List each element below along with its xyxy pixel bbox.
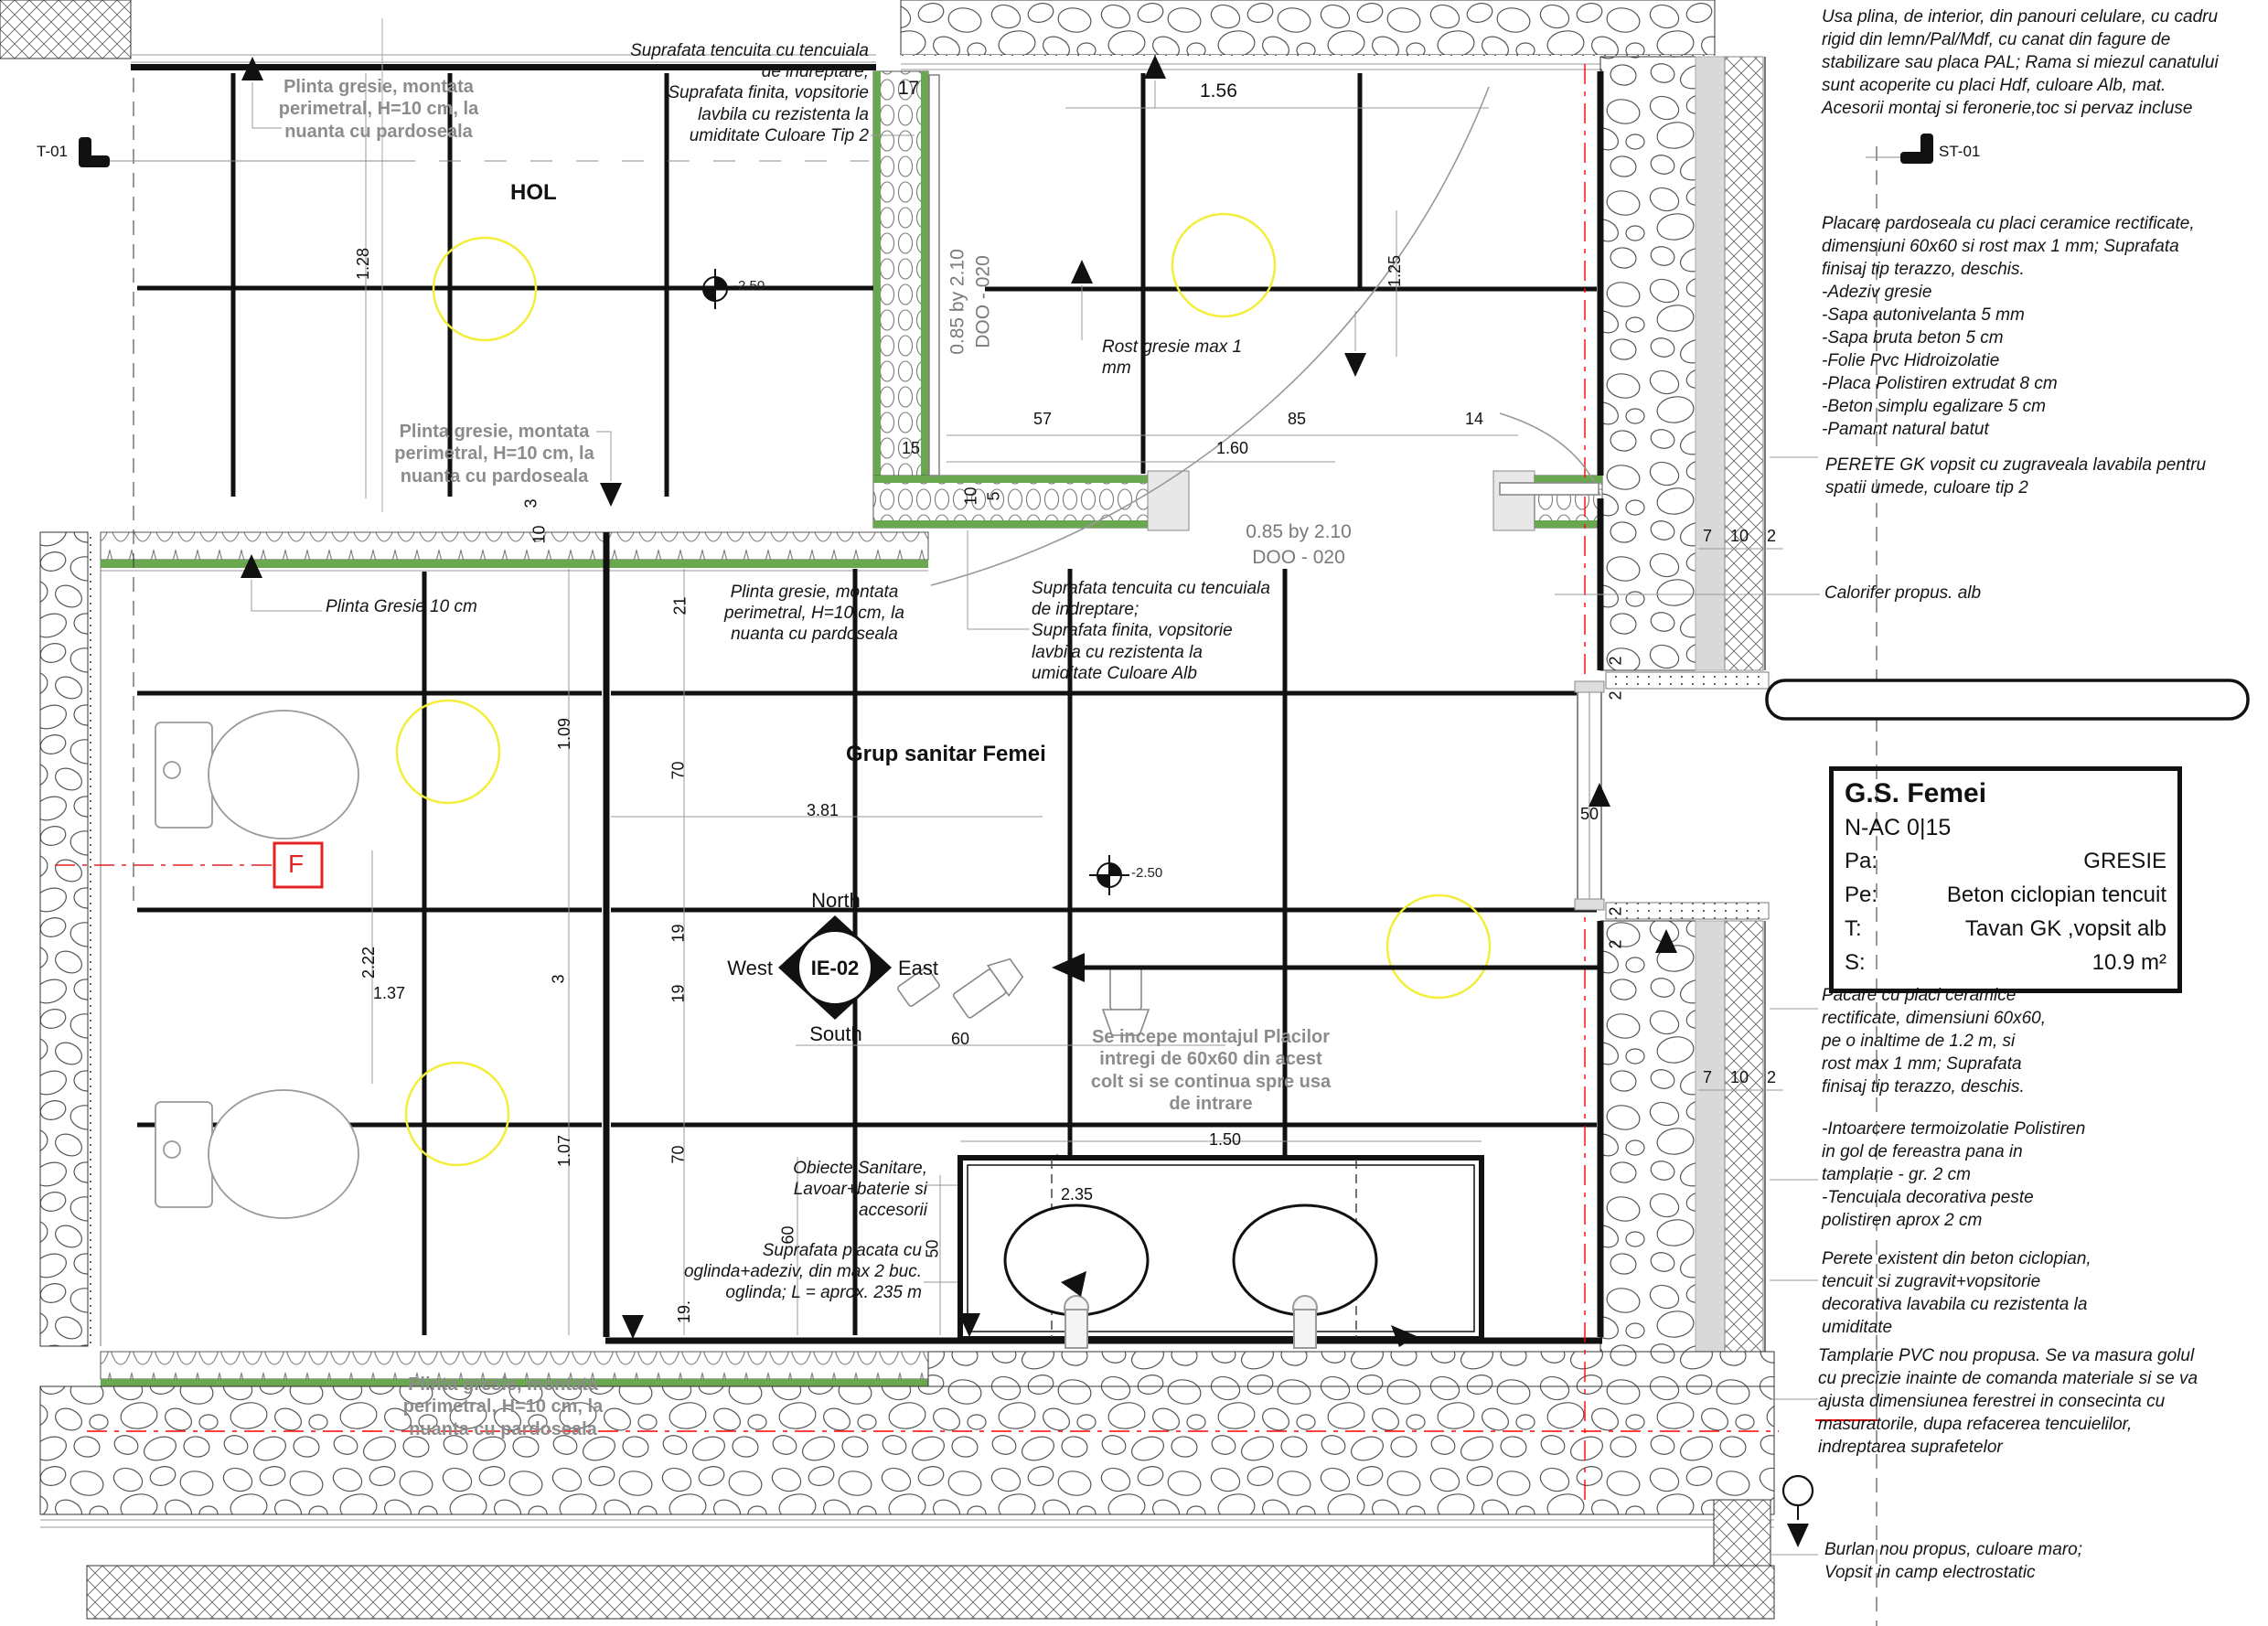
note-rost: Rost gresie max 1 mm	[1102, 337, 1358, 379]
dim-2-sill-a: 2	[1607, 656, 1626, 665]
room-label-hol: HOL	[510, 179, 557, 206]
dim-1-60: 1.60	[1216, 439, 1248, 458]
dim-3-81: 3.81	[807, 801, 839, 820]
dim-70-a: 70	[669, 761, 689, 779]
note-plinta-italic: Plinta gresie, montata perimetral, H=10 …	[702, 582, 926, 646]
info-row-pe: Pe: Beton ciclopian tencuit	[1845, 878, 2166, 912]
note-montaj: Se incepe montajul Placilor intregi de 6…	[1077, 1026, 1344, 1116]
dim-5-wall: 5	[985, 491, 1004, 500]
compass-id: IE-02	[800, 957, 870, 981]
dim-19-b: 19	[669, 984, 689, 1002]
info-box-title: G.S. Femei	[1845, 776, 2166, 811]
dim-3-b: 3	[550, 974, 569, 983]
info-row-s: S: 10.9 m²	[1845, 946, 2166, 979]
dim-60-b: 60	[779, 1225, 798, 1244]
note-pacare: Pacare cu placi ceramice rectificate, di…	[1822, 984, 2151, 1098]
door2-label: 0.85 by 2.10DOO - 020	[1216, 519, 1381, 572]
floor-plan-canvas: Plinta gresie, montata perimetral, H=10 …	[0, 0, 2268, 1626]
level-value-hol: -2.50	[733, 278, 765, 294]
dim-2-sill-b: 2	[1607, 690, 1626, 700]
dim-2-22: 2.22	[359, 947, 379, 979]
room-label-main: Grup sanitar Femei	[846, 741, 1046, 767]
info-box-code: N-AC 0|15	[1845, 811, 2166, 844]
dim-7-bottom: 7	[1703, 1068, 1712, 1087]
door1-label-wrap: 0.85 by 2.10DOO - 020	[946, 165, 998, 439]
compass-north: North	[796, 889, 876, 914]
st01-symbol	[1900, 134, 1933, 164]
note-burlan: Burlan nou propus, culoare maro; Vopsit …	[1824, 1538, 2268, 1584]
dim-1-56: 1.56	[1200, 80, 1237, 102]
toilet-1	[155, 711, 358, 839]
note-suprafata-alb: Suprafata tencuita cu tencuiala de indre…	[1032, 578, 1306, 684]
dim-85: 85	[1288, 410, 1306, 429]
dim-2-sill-d: 2	[1607, 939, 1626, 948]
dim-14: 14	[1465, 410, 1483, 429]
room-info-box: G.S. Femei N-AC 0|15 Pa: GRESIE Pe: Beto…	[1829, 766, 2182, 993]
section-marker-f-label: F	[288, 849, 304, 880]
door1-label: 0.85 by 2.10DOO - 020	[946, 165, 998, 439]
dim-21: 21	[671, 596, 690, 615]
dim-19-a: 19	[669, 924, 689, 942]
dim-1-50: 1.50	[1209, 1130, 1241, 1150]
dim-1-09: 1.09	[555, 718, 574, 750]
door2-code: DOO - 020	[1252, 547, 1345, 568]
dim-1-07: 1.07	[555, 1135, 574, 1167]
dim-50-window: 50	[1580, 805, 1599, 824]
dim-50-a: 50	[924, 1239, 943, 1257]
dim-10-wall-b: 10	[530, 525, 550, 543]
compass-east: East	[898, 957, 938, 981]
info-row-pa: Pa: GRESIE	[1845, 844, 2166, 878]
door1-size: 0.85 by 2.10	[947, 249, 968, 355]
toilet-2	[155, 1090, 358, 1218]
note-perete-gk: PERETE GK vopsit cu zugraveala lavabila …	[1825, 454, 2268, 499]
level-value-main: -2.50	[1131, 865, 1162, 881]
dim-15: 15	[902, 439, 920, 458]
dim-60-a: 60	[951, 1030, 969, 1049]
note-oglinda: Suprafata placata cu oglinda+adeziv, din…	[640, 1240, 922, 1304]
info-row-pa-key: Pa:	[1845, 844, 1892, 878]
compass-west: West	[709, 957, 773, 981]
door2-size: 0.85 by 2.10	[1246, 521, 1352, 542]
spotlight-track-icon	[897, 953, 1599, 1035]
info-row-t: T: Tavan GK ,vopsit alb	[1845, 912, 2166, 946]
dim-7-top: 7	[1703, 527, 1712, 546]
marker-t01: T-01	[37, 143, 68, 161]
door1-code: DOO - 020	[973, 255, 994, 348]
note-plinta-1: Plinta gresie, montata perimetral, H=10 …	[236, 76, 521, 143]
note-plinta-3: Plinta gresie, montata perimetral, H=10 …	[389, 1374, 617, 1440]
t01-symbol	[79, 137, 110, 167]
info-row-s-value: 10.9 m²	[1892, 946, 2166, 979]
marker-st01: ST-01	[1939, 143, 1980, 161]
dim-70-b: 70	[669, 1145, 689, 1163]
wall-lines	[605, 71, 1602, 1341]
note-plinta-2: Plinta gresie, montata perimetral, H=10 …	[391, 421, 597, 487]
sink-counter	[960, 1158, 1482, 1348]
radiator-icon	[1767, 680, 2248, 719]
dim-10-bottom: 10	[1730, 1068, 1749, 1087]
info-row-t-value: Tavan GK ,vopsit alb	[1892, 912, 2166, 946]
compass-south: South	[796, 1022, 876, 1047]
note-perete-existent: Perete existent din beton ciclopian, ten…	[1822, 1247, 2268, 1339]
dim-17: 17	[898, 78, 919, 100]
note-usa: Usa plina, de interior, din panouri celu…	[1822, 5, 2268, 120]
dim-2-35: 2.35	[1061, 1185, 1093, 1204]
downspout-icon	[1783, 1476, 1813, 1547]
dim-2-sill-c: 2	[1607, 906, 1626, 915]
dim-10-wall: 10	[962, 487, 981, 505]
note-tamplarie: Tamplarie PVC nou propusa. Se va masura …	[1818, 1344, 2264, 1459]
dim-1-28: 1.28	[354, 248, 373, 280]
dim-19-c: 19.	[675, 1300, 694, 1323]
dim-10-top: 10	[1730, 527, 1749, 546]
dim-1-25: 1.25	[1385, 255, 1405, 287]
dim-2-top: 2	[1767, 527, 1776, 546]
info-row-pa-value: GRESIE	[1892, 844, 2166, 878]
dim-2-bottom: 2	[1767, 1068, 1776, 1087]
info-row-t-key: T:	[1845, 912, 1892, 946]
note-calorifer: Calorifer propus. alb	[1824, 582, 2268, 604]
note-intoarcere: -Intoarcere termoizolatie Polistiren in …	[1822, 1118, 2268, 1232]
note-plinta-gresie10: Plinta Gresie 10 cm	[326, 596, 477, 617]
dim-1-37: 1.37	[373, 984, 405, 1003]
note-suprafata-tip2: Suprafata tencuita cu tencuiala de indre…	[567, 40, 869, 146]
info-row-pe-value: Beton ciclopian tencuit	[1892, 878, 2166, 912]
note-obiecte: Obiecte Sanitare, Lavoar+baterie si acce…	[757, 1158, 927, 1222]
info-row-s-key: S:	[1845, 946, 1892, 979]
dim-3-wall: 3	[522, 498, 541, 508]
note-placare: Placare pardoseala cu placi ceramice rec…	[1822, 212, 2268, 441]
info-row-pe-key: Pe:	[1845, 878, 1892, 912]
dim-57: 57	[1033, 410, 1052, 429]
